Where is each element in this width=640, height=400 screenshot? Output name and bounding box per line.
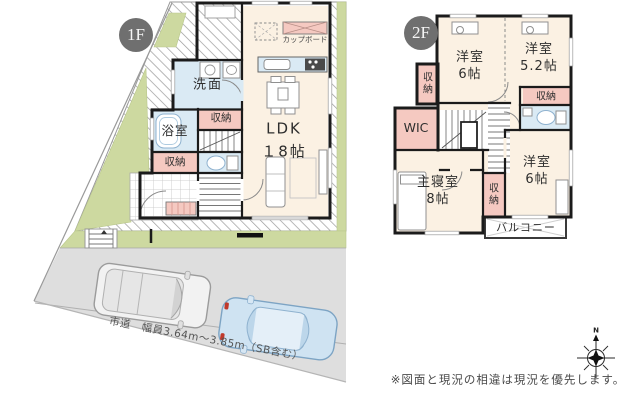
compass-icon: [577, 335, 615, 379]
toilet-1f: [207, 156, 238, 170]
room-label-storage-bottom: 収 納: [489, 184, 499, 207]
window: [290, 1, 312, 5]
desk-top-left: [452, 22, 478, 34]
room-label-storage-a: 収納: [211, 112, 232, 126]
window: [252, 1, 278, 5]
room-label-bed-tl: 洋室 6帖: [456, 50, 484, 84]
room-label-storage-left: 収 納: [423, 73, 433, 96]
cupboard: [283, 22, 327, 34]
washer-and-vanity: [200, 62, 240, 78]
dining-set: [267, 77, 299, 115]
floor1-badge: 1F: [119, 18, 153, 52]
window: [450, 14, 476, 18]
room-label-balcony: バルコニー: [496, 221, 556, 235]
shoe-cabinet: [166, 202, 196, 215]
window: [569, 150, 573, 186]
desk-top-right: [522, 22, 548, 34]
room-label-ldk: LDK １8帖: [261, 118, 307, 163]
window: [425, 231, 459, 235]
room-label-master: 主寝室 8帖: [417, 175, 459, 209]
room-label-storage-right: 収納: [536, 90, 556, 103]
disclaimer-text: ※図面と現況の相違は現況を優先します。: [391, 373, 625, 388]
window: [569, 38, 573, 66]
window: [171, 70, 175, 94]
window: [522, 14, 548, 18]
sliding-door: [252, 216, 308, 220]
stair-rail: [461, 122, 477, 148]
door-gap: [197, 181, 200, 201]
room-label-bed-br: 洋室 6帖: [523, 155, 551, 189]
tv-board: [319, 150, 327, 194]
room-label-cupboard: カップボード: [283, 35, 328, 45]
room-label-storage-b: 収納: [165, 156, 186, 170]
north-label: N: [593, 326, 599, 335]
room-label-senmen: 洗面: [193, 78, 223, 95]
room-label-wic: WIC: [404, 120, 429, 136]
balcony-door: [512, 215, 548, 219]
door-gap: [450, 169, 470, 172]
floorplan-page: 1F 2F カップボード 洗面 収納 浴室 収納 LDK １8帖 洋室 6帖 洋…: [0, 0, 640, 400]
door-gap: [241, 179, 244, 201]
gate-marker: [237, 233, 263, 238]
room-label-bath: 浴室: [161, 123, 188, 139]
kitchen-counter: [258, 57, 327, 72]
porch-roof: [205, 6, 235, 18]
floor2-badge: 2F: [404, 16, 438, 50]
window: [328, 148, 332, 188]
entrance-steps: [85, 229, 117, 248]
door-gap: [504, 138, 507, 158]
closet-bottom-right: [556, 180, 568, 214]
window: [393, 170, 397, 204]
window: [150, 118, 154, 140]
door-gap: [241, 80, 244, 101]
garden-strip-right: [337, 2, 346, 231]
room-label-bed-tr: 洋室 5.2帖: [520, 42, 558, 76]
window: [328, 78, 332, 114]
